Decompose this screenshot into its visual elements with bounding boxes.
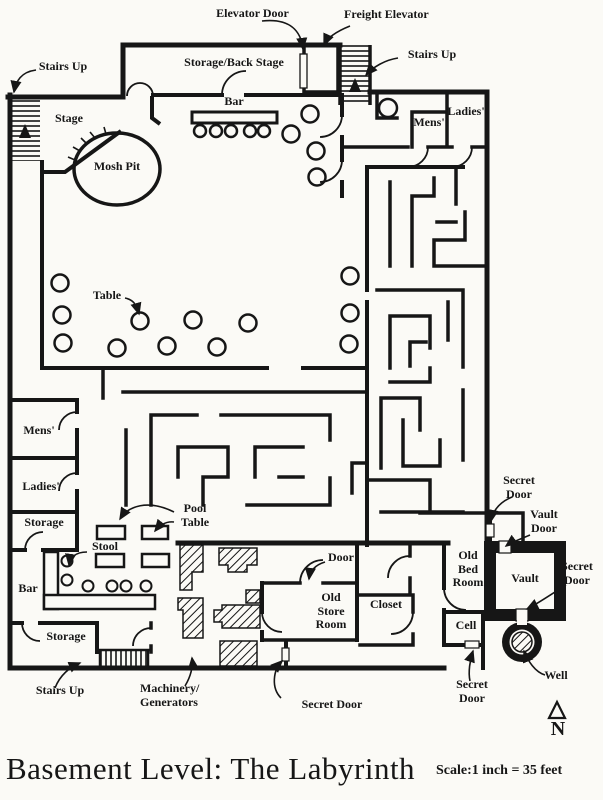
label-old-bed-room: Old Bed Room: [446, 549, 490, 590]
label-storage-bottom: Storage: [36, 630, 96, 644]
vault-door-slot: [499, 541, 511, 553]
label-storage-left: Storage: [16, 516, 72, 530]
label-cell: Cell: [448, 619, 484, 633]
label-stairs-up-bottom: Stairs Up: [24, 684, 96, 698]
label-bar-top: Bar: [218, 95, 250, 109]
label-table: Table: [86, 289, 128, 303]
label-elevator-door: Elevator Door: [205, 7, 300, 21]
label-stage: Stage: [46, 112, 92, 126]
label-door: Door: [320, 551, 362, 565]
stairs-top-left: [10, 99, 40, 161]
washbasin: [379, 99, 397, 117]
label-stairs-up-top-left: Stairs Up: [30, 60, 96, 74]
floor-plan-page: Elevator Door Freight Elevator Stairs Up…: [0, 0, 603, 800]
label-bar-left: Bar: [12, 582, 44, 596]
label-stairs-up-top-right: Stairs Up: [398, 48, 466, 62]
outer-walls: [8, 45, 487, 668]
stairs-top-right: [340, 45, 370, 105]
label-secret-door-top-right: Secret Door: [494, 474, 544, 501]
label-freight-elevator: Freight Elevator: [344, 8, 464, 22]
hall-tables: [52, 106, 359, 357]
label-vault-door: Vault Door: [518, 508, 570, 535]
label-ladies-top: Ladies': [443, 105, 489, 119]
label-storage-back-stage: Storage/Back Stage: [168, 56, 300, 70]
north-letter: N: [544, 718, 572, 741]
page-title: Basement Level: The Labyrinth: [6, 752, 446, 786]
elevator-door-slot: [300, 54, 307, 88]
secret-door-slot-corridor: [486, 524, 494, 537]
label-mens-left: Mens': [16, 424, 62, 438]
label-ladies-left: Ladies': [14, 480, 68, 494]
north-arrow-icon: [549, 702, 565, 718]
label-stool: Stool: [84, 540, 126, 554]
label-secret-door-bottom-right: Secret Door: [444, 678, 500, 705]
stairs-bottom-left: [97, 650, 151, 666]
label-closet: Closet: [362, 598, 410, 612]
freight-elevator-shaft: [304, 45, 340, 96]
bar-counter-top: [192, 112, 277, 123]
scale-note: Scale:1 inch = 35 feet: [436, 763, 602, 779]
label-mosh-pit: Mosh Pit: [85, 160, 149, 174]
maze-walls-central: [103, 368, 367, 505]
label-secret-door-right: Secret Door: [552, 560, 602, 587]
label-vault: Vault: [500, 572, 550, 586]
label-machinery: Machinery/ Generators: [140, 682, 232, 709]
bar-stools-top: [194, 125, 270, 137]
label-old-store-room: Old Store Room: [303, 591, 359, 632]
label-well: Well: [534, 669, 578, 683]
label-pool-table: Pool Table: [170, 502, 220, 529]
well-structure: [502, 618, 542, 662]
label-secret-door-bottom-center: Secret Door: [288, 698, 376, 712]
machinery-hatch: [178, 545, 260, 666]
